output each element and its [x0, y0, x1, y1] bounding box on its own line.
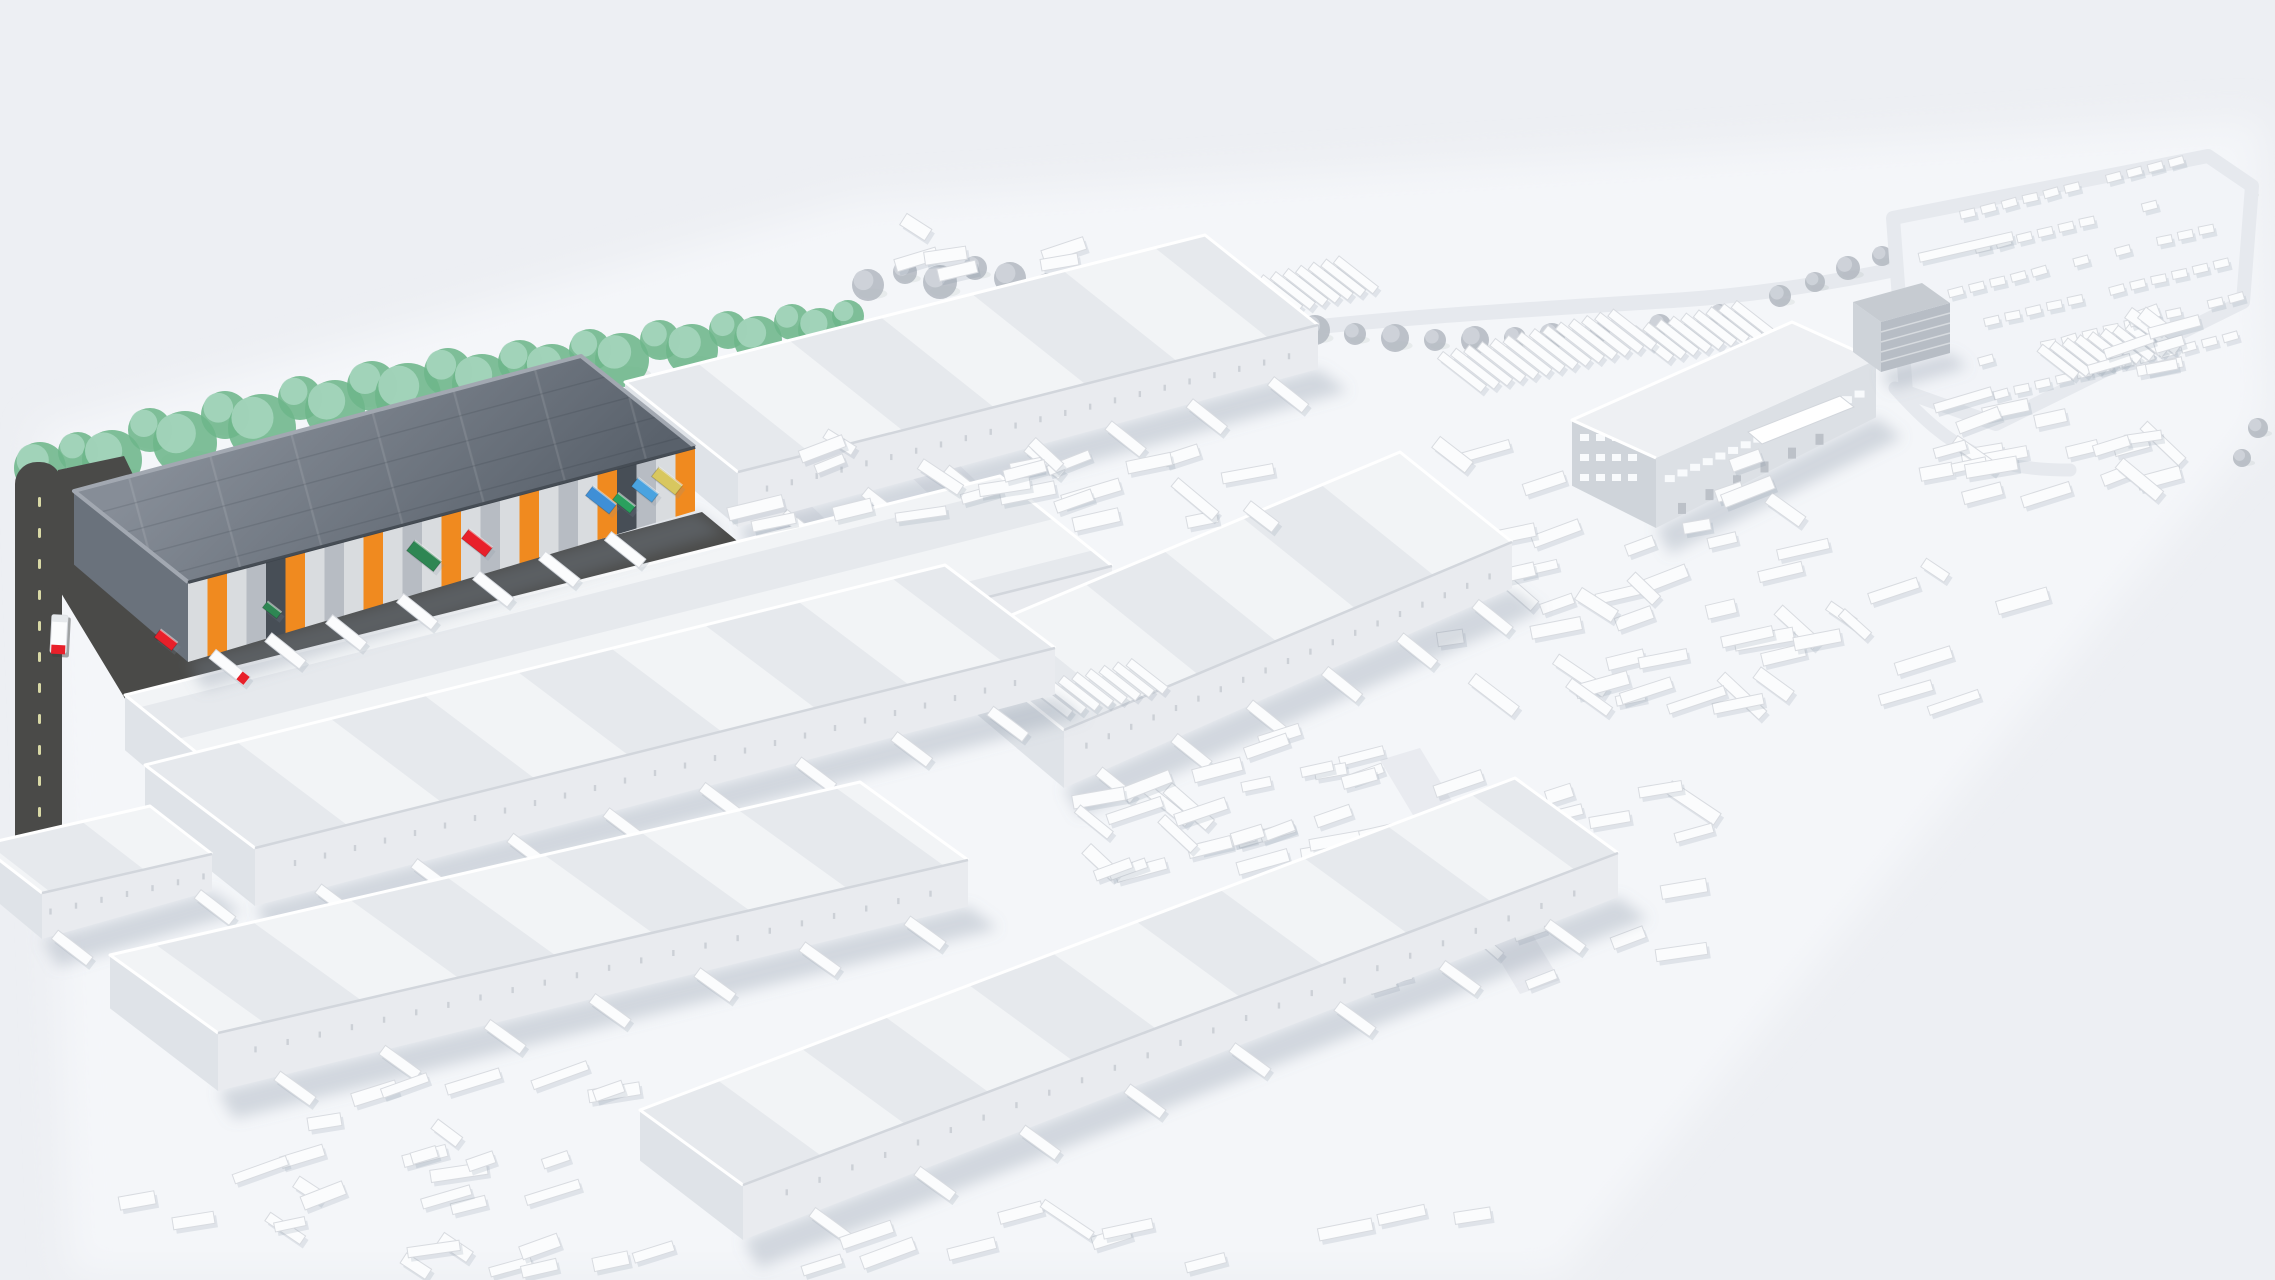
- dock-door-mark: [1263, 360, 1265, 366]
- dock-door-mark: [714, 755, 716, 761]
- dock-door: [266, 556, 286, 639]
- dock-door-mark: [851, 1164, 853, 1170]
- dock-door-mark: [1114, 397, 1116, 403]
- dock-door: [500, 494, 520, 569]
- dock-door-mark: [49, 909, 51, 915]
- dock-door-mark: [915, 448, 917, 454]
- office-window: [1715, 453, 1725, 460]
- dock-door-mark: [1064, 410, 1066, 416]
- dock-door-mark: [444, 823, 446, 829]
- dock-door-mark: [544, 980, 546, 986]
- park-illustration-canvas: [0, 0, 2275, 1280]
- gray-tree-crown-light: [854, 270, 874, 290]
- logistics-park-illustration: [0, 0, 2275, 1280]
- gray-tree-crown-light: [996, 263, 1016, 283]
- dock-door-mark: [1287, 658, 1289, 664]
- dock-door-mark: [736, 935, 738, 941]
- dock-door-mark: [1442, 940, 1444, 946]
- green-tree-crown-light: [776, 305, 798, 327]
- office-window: [1677, 469, 1687, 476]
- dock-door-mark: [564, 793, 566, 799]
- dock-door-mark: [594, 785, 596, 791]
- dock-door: [247, 561, 267, 644]
- dock-door-mark: [769, 928, 771, 934]
- dock-door: [305, 546, 325, 628]
- office-window: [1728, 447, 1738, 454]
- office-gable-window: [1580, 474, 1589, 481]
- office-door: [1678, 503, 1686, 514]
- dock-door-mark: [1089, 404, 1091, 410]
- office-door: [1816, 434, 1824, 445]
- gray-tree-crown-light: [1345, 324, 1359, 338]
- office-window: [1741, 441, 1751, 448]
- dock-door-mark: [1212, 1027, 1214, 1033]
- dock-door-mark: [1014, 423, 1016, 429]
- green-tree-crown-light: [834, 301, 854, 321]
- dock-door-mark: [1108, 733, 1110, 739]
- dock-door-mark: [744, 748, 746, 754]
- dock-door-mark: [1188, 378, 1190, 384]
- dock-door-mark: [126, 891, 128, 897]
- dock-door-mark: [1573, 891, 1575, 897]
- dock-door: [481, 499, 501, 575]
- office-window: [1665, 475, 1675, 482]
- road-center-dash: [38, 528, 41, 538]
- dock-door-mark: [1444, 592, 1446, 598]
- dock-door-mark: [1376, 620, 1378, 626]
- dock-door: [364, 530, 384, 610]
- dock-door-mark: [950, 1127, 952, 1133]
- dock-door-mark: [576, 972, 578, 978]
- dock-door-mark: [766, 486, 768, 492]
- dock-door-mark: [1409, 953, 1411, 959]
- dock-door-mark: [1475, 928, 1477, 934]
- dock-door-mark: [864, 718, 866, 724]
- office-gable-window: [1596, 454, 1605, 461]
- green-tree-crown-light: [130, 410, 157, 437]
- dock-door-mark: [884, 1152, 886, 1158]
- dock-door: [344, 535, 364, 615]
- road-center-dash: [38, 776, 41, 786]
- dock-door-mark: [534, 800, 536, 806]
- dock-door-mark: [1278, 1003, 1280, 1009]
- green-tree-crown-light: [156, 414, 196, 454]
- office-gable-window: [1612, 454, 1621, 461]
- dock-door-mark: [151, 885, 153, 891]
- dock-door-mark: [1146, 1052, 1148, 1058]
- dock-door-mark: [990, 429, 992, 435]
- dock-door-mark: [704, 943, 706, 949]
- dock-door-mark: [804, 733, 806, 739]
- dock-door-mark: [894, 710, 896, 716]
- dock-door-mark: [865, 460, 867, 466]
- dock-door-mark: [75, 903, 77, 909]
- dock-door-mark: [624, 778, 626, 784]
- gray-tree-crown-light: [1425, 330, 1439, 344]
- dock-door: [442, 509, 462, 586]
- dock-door-mark: [1139, 391, 1141, 397]
- dock-door-mark: [1130, 724, 1132, 730]
- gray-tree-crown-light: [1382, 325, 1399, 342]
- gray-tree-crown-light: [2249, 419, 2261, 431]
- dock-door-mark: [286, 1039, 288, 1045]
- road-center-dash: [38, 714, 41, 724]
- dock-door: [188, 577, 208, 662]
- dock-door: [520, 489, 540, 564]
- green-tree-crown-light: [500, 342, 527, 369]
- dock-door: [325, 540, 345, 621]
- dock-door-mark: [447, 1002, 449, 1008]
- dock-door-mark: [415, 1009, 417, 1015]
- dock-door-mark: [684, 763, 686, 769]
- dock-door: [559, 478, 579, 552]
- office-gable-window: [1628, 474, 1637, 481]
- green-tree-crown-light: [426, 350, 456, 380]
- dock-door-mark: [294, 860, 296, 866]
- dock-door-mark: [965, 435, 967, 441]
- green-tree-crown-light: [60, 434, 85, 459]
- green-tree-crown-light: [231, 397, 273, 439]
- dock-door-mark: [383, 1017, 385, 1023]
- road-center-dash: [38, 652, 41, 662]
- dock-door-mark: [1399, 611, 1401, 617]
- dock-door-mark: [654, 770, 656, 776]
- dock-door-mark: [351, 1024, 353, 1030]
- dock-door-mark: [1354, 630, 1356, 636]
- dock-door-mark: [202, 873, 204, 879]
- gray-tree: [2233, 449, 2255, 467]
- road-center-dash: [38, 745, 41, 755]
- dock-door: [539, 483, 559, 557]
- green-tree-crown-light: [598, 335, 631, 368]
- dock-door-mark: [324, 853, 326, 859]
- dock-door-mark: [1343, 978, 1345, 984]
- green-tree-crown-light: [642, 322, 667, 347]
- dock-door-mark: [504, 808, 506, 814]
- dock-door-mark: [1048, 1090, 1050, 1096]
- dock-door-mark: [1540, 903, 1542, 909]
- dock-door-mark: [818, 1177, 820, 1183]
- dock-door-mark: [254, 1046, 256, 1052]
- road-center-dash: [38, 683, 41, 693]
- dock-door-mark: [1085, 743, 1087, 749]
- dock-door-mark: [929, 891, 931, 897]
- dock-door-mark: [834, 725, 836, 731]
- office-door: [1706, 489, 1714, 500]
- dock-door-mark: [1164, 385, 1166, 391]
- dock-door-mark: [924, 703, 926, 709]
- dock-door-mark: [791, 479, 793, 485]
- dock-door-mark: [1213, 372, 1215, 378]
- dock-door-mark: [1175, 705, 1177, 711]
- gray-tree-crown-light: [1806, 273, 1818, 285]
- dock-door-mark: [1488, 573, 1490, 579]
- gray-tree-crown-light: [1873, 247, 1885, 259]
- dock-door-mark: [774, 740, 776, 746]
- dock-door-mark: [1288, 353, 1290, 359]
- dock-door-mark: [1081, 1077, 1083, 1083]
- dock-door-mark: [1152, 714, 1154, 720]
- dock-door-mark: [319, 1032, 321, 1038]
- green-tree-crown-light: [669, 326, 701, 358]
- green-tree-crown-light: [571, 331, 597, 357]
- gray-tree-crown-light: [1770, 286, 1784, 300]
- gray-tree-crown-light: [1462, 327, 1479, 344]
- dock-door-mark: [608, 965, 610, 971]
- dock-door-mark: [1264, 667, 1266, 673]
- gray-tree-crown-light: [1837, 257, 1852, 272]
- dock-door-mark: [1220, 686, 1222, 692]
- dock-door: [578, 473, 598, 546]
- green-tree-crown-light: [203, 393, 233, 423]
- dock-door-mark: [1376, 965, 1378, 971]
- dock-door: [227, 566, 247, 650]
- dock-door-mark: [100, 897, 102, 903]
- gray-tree: [2248, 418, 2272, 438]
- gray-tree-crown-light: [2234, 450, 2245, 461]
- dock-door-mark: [672, 950, 674, 956]
- road-center-dash: [38, 621, 41, 631]
- dock-door: [383, 525, 403, 604]
- dock-door-mark: [833, 913, 835, 919]
- green-tree-crown-light: [308, 382, 345, 419]
- green-tree-crown-light: [280, 378, 307, 405]
- dock-door-mark: [1039, 416, 1041, 422]
- dock-door-mark: [1311, 990, 1313, 996]
- green-tree-crown-light: [711, 313, 735, 337]
- road-center-dash: [38, 807, 41, 817]
- dock-door-mark: [786, 1189, 788, 1195]
- dock-door-mark: [1015, 1102, 1017, 1108]
- office-window: [1855, 391, 1865, 398]
- dock-door-mark: [984, 688, 986, 694]
- office-window: [1703, 458, 1713, 465]
- green-tree-crown-light: [736, 318, 766, 348]
- dock-door-mark: [474, 815, 476, 821]
- dock-door-mark: [897, 898, 899, 904]
- dock-door: [208, 572, 228, 657]
- office-gable-window: [1580, 434, 1589, 441]
- dock-door-mark: [1421, 602, 1423, 608]
- dock-door-mark: [1466, 583, 1468, 589]
- dock-door-mark: [479, 994, 481, 1000]
- road-center-dash: [38, 559, 41, 569]
- dock-door-mark: [511, 987, 513, 993]
- office-gable-window: [1612, 474, 1621, 481]
- dock-door-mark: [940, 441, 942, 447]
- office-window: [1690, 464, 1700, 471]
- dock-door-mark: [1242, 677, 1244, 683]
- dock-door-mark: [1245, 1015, 1247, 1021]
- dock-door-mark: [1309, 649, 1311, 655]
- road-center-dash: [38, 590, 41, 600]
- dock-door-mark: [1014, 680, 1016, 686]
- dock-door-mark: [917, 1140, 919, 1146]
- dock-door-mark: [640, 957, 642, 963]
- dock-door-mark: [1179, 1040, 1181, 1046]
- dock-door-mark: [1197, 696, 1199, 702]
- road-center-dash: [38, 497, 41, 507]
- dock-door-mark: [177, 879, 179, 885]
- dock-door-mark: [1332, 639, 1334, 645]
- dock-door-mark: [865, 906, 867, 912]
- truck-red-rear: [51, 645, 65, 655]
- office-gable-window: [1580, 454, 1589, 461]
- dock-door-mark: [954, 695, 956, 701]
- dock-door-mark: [354, 845, 356, 851]
- dock-door-mark: [982, 1115, 984, 1121]
- dock-door: [286, 551, 306, 633]
- dock-door-mark: [414, 830, 416, 836]
- truck-cab: [52, 615, 68, 623]
- delivery-truck: [50, 615, 71, 658]
- dock-door-mark: [1238, 366, 1240, 372]
- dock-door-mark: [801, 920, 803, 926]
- dock-door-mark: [1507, 915, 1509, 921]
- office-gable-window: [1596, 474, 1605, 481]
- office-door: [1788, 448, 1796, 459]
- dock-door-mark: [1114, 1065, 1116, 1071]
- dock-door-mark: [384, 838, 386, 844]
- office-gable-window: [1628, 454, 1637, 461]
- dock-door-mark: [890, 454, 892, 460]
